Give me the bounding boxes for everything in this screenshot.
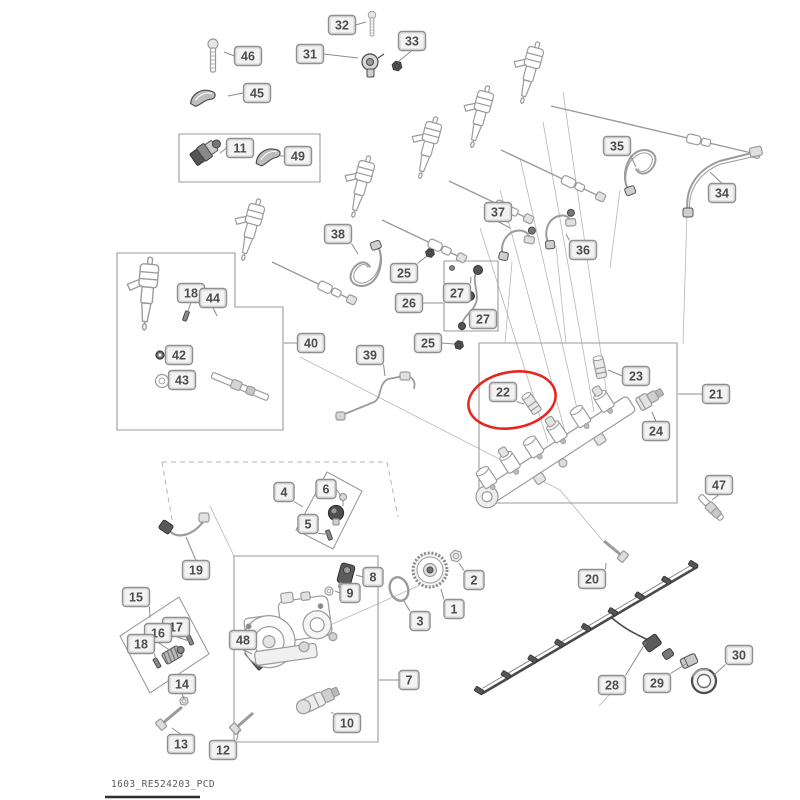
part-number: 24 <box>649 425 663 439</box>
part-label-48[interactable]: 48 <box>230 631 257 650</box>
part-number: 36 <box>576 244 590 258</box>
fuel-injector <box>454 81 496 150</box>
bolt-32 <box>368 11 376 36</box>
part-number: 20 <box>585 573 599 587</box>
part-number: 12 <box>216 744 230 758</box>
part-number: 29 <box>650 677 664 691</box>
part-label-13[interactable]: 13 <box>168 735 195 754</box>
nut-2 <box>450 550 462 562</box>
part-label-27[interactable]: 27 <box>444 284 471 303</box>
part-label-49[interactable]: 49 <box>285 147 312 166</box>
part-label-2[interactable]: 2 <box>464 571 484 590</box>
part-label-43[interactable]: 43 <box>169 371 196 390</box>
fuel-injector <box>335 151 377 220</box>
part-number: 35 <box>610 140 624 154</box>
exploded-parts-diagram: 4645323133114935343736382527262725394018… <box>0 0 800 800</box>
part-number: 25 <box>397 267 411 281</box>
parts-artwork <box>123 11 762 734</box>
part-number: 8 <box>370 571 377 585</box>
part-label-12[interactable]: 12 <box>210 741 237 760</box>
injection-line <box>551 106 761 159</box>
part-label-45[interactable]: 45 <box>244 84 271 103</box>
part-label-40[interactable]: 40 <box>298 334 325 353</box>
drive-gear-1 <box>413 553 447 587</box>
part-number: 49 <box>291 150 305 164</box>
hose-34 <box>683 146 763 217</box>
hose-38 <box>342 240 393 290</box>
part-label-1[interactable]: 1 <box>444 600 464 619</box>
part-label-7[interactable]: 7 <box>399 671 419 690</box>
part-number: 11 <box>233 142 246 156</box>
part-number: 13 <box>174 738 188 752</box>
part-label-32[interactable]: 32 <box>329 16 356 35</box>
part-number: 32 <box>335 19 349 33</box>
clamp-49 <box>253 146 282 167</box>
part-number: 42 <box>172 349 186 363</box>
part-number: 28 <box>605 679 619 693</box>
part-label-36[interactable]: 36 <box>570 241 597 260</box>
bolt-20 <box>604 541 629 563</box>
part-number: 3 <box>417 615 424 629</box>
part-label-8[interactable]: 8 <box>363 568 383 587</box>
part-label-30[interactable]: 30 <box>726 646 753 665</box>
part-label-6[interactable]: 6 <box>316 480 336 499</box>
part-label-26[interactable]: 26 <box>396 294 423 313</box>
part-number: 10 <box>340 717 354 731</box>
part-label-28[interactable]: 28 <box>599 676 626 695</box>
pin-47 <box>697 493 726 522</box>
part-number: 34 <box>715 187 729 201</box>
part-number: 22 <box>496 386 510 400</box>
part-number: 15 <box>129 591 143 605</box>
washer-43 <box>156 375 169 388</box>
part-label-42[interactable]: 42 <box>166 346 193 365</box>
injection-pump-7 <box>237 587 340 671</box>
part-label-15[interactable]: 15 <box>123 588 150 607</box>
sensor-31 <box>362 54 384 77</box>
part-label-4[interactable]: 4 <box>274 483 294 502</box>
part-number: 21 <box>709 388 723 402</box>
part-number: 4 <box>281 486 288 500</box>
part-number: 31 <box>303 48 317 62</box>
part-label-14[interactable]: 14 <box>169 675 196 694</box>
part-label-18[interactable]: 18 <box>128 635 155 654</box>
fuel-injector <box>504 37 546 106</box>
part-number: 40 <box>304 337 318 351</box>
sensor-24 <box>635 385 665 411</box>
element-16 <box>161 643 186 665</box>
document-code: 1603_RE524203_PCD <box>111 779 215 790</box>
part-label-11[interactable]: 11 <box>227 139 254 158</box>
part-label-23[interactable]: 23 <box>623 367 650 386</box>
part-label-33[interactable]: 33 <box>399 32 426 51</box>
shaft-40 <box>210 371 269 402</box>
fuel-injector <box>402 112 444 181</box>
part-number: 26 <box>402 297 416 311</box>
fitting-23 <box>593 355 607 379</box>
bolt-13 <box>155 707 182 731</box>
part-number: 7 <box>406 674 413 688</box>
part-label-29[interactable]: 29 <box>644 674 671 693</box>
washer-42 <box>156 351 164 359</box>
part-label-25[interactable]: 25 <box>415 334 442 353</box>
part-number: 18 <box>184 287 198 301</box>
nut-25 <box>455 341 464 350</box>
fuel-pipe-39 <box>336 372 415 420</box>
solenoid-10 <box>294 684 341 716</box>
part-label-34[interactable]: 34 <box>709 184 736 203</box>
part-number: 1 <box>451 603 458 617</box>
part-number: 9 <box>347 587 354 601</box>
clamp-45 <box>188 88 217 108</box>
hose-37 <box>498 222 536 264</box>
part-label-5[interactable]: 5 <box>298 515 318 534</box>
part-number: 44 <box>206 292 220 306</box>
part-number: 19 <box>189 564 203 578</box>
part-number: 30 <box>732 649 746 663</box>
part-label-35[interactable]: 35 <box>604 137 631 156</box>
part-label-3[interactable]: 3 <box>410 612 430 631</box>
injection-line <box>272 262 357 305</box>
part-label-44[interactable]: 44 <box>200 289 227 308</box>
pin-18 <box>182 311 189 322</box>
part-label-39[interactable]: 39 <box>357 346 384 365</box>
bolt-12 <box>229 713 253 735</box>
part-number: 43 <box>175 374 189 388</box>
part-label-31[interactable]: 31 <box>297 45 324 64</box>
part-label-27[interactable]: 27 <box>470 310 497 329</box>
sensor-11 <box>189 135 224 166</box>
bolt-46 <box>208 39 218 72</box>
part-number: 47 <box>712 479 726 493</box>
part-number: 27 <box>450 287 464 301</box>
cap-30 <box>692 669 716 693</box>
part-number: 45 <box>250 87 264 101</box>
part-number: 48 <box>236 634 250 648</box>
part-label-19[interactable]: 19 <box>183 561 210 580</box>
o-ring-3 <box>387 575 412 603</box>
part-number: 14 <box>175 678 189 692</box>
part-number: 18 <box>134 638 148 652</box>
injection-line <box>382 220 467 263</box>
part-label-20[interactable]: 20 <box>579 570 606 589</box>
valve-4 <box>329 506 344 526</box>
parts-diagram-page: 4645323133114935343736382527262725394018… <box>0 0 800 800</box>
part-label-46[interactable]: 46 <box>235 47 262 66</box>
part-label-38[interactable]: 38 <box>325 225 352 244</box>
fuel-injector-40 <box>123 256 159 332</box>
part-label-10[interactable]: 10 <box>334 714 361 733</box>
fitting-22 <box>521 391 542 415</box>
part-number: 23 <box>629 370 643 384</box>
part-label-25[interactable]: 25 <box>391 264 418 283</box>
pin-5 <box>325 530 332 541</box>
nut-33 <box>392 61 402 71</box>
part-number: 33 <box>405 35 419 49</box>
part-number: 27 <box>476 313 490 327</box>
washer-9 <box>325 587 333 595</box>
part-number: 46 <box>241 50 255 64</box>
part-label-24[interactable]: 24 <box>643 422 670 441</box>
hose-19 <box>158 513 209 535</box>
part-number: 39 <box>363 349 377 363</box>
part-number: 6 <box>323 483 330 497</box>
part-label-21[interactable]: 21 <box>703 385 730 404</box>
pin-18b <box>153 658 161 669</box>
injection-line <box>501 150 606 202</box>
part-label-9[interactable]: 9 <box>340 584 360 603</box>
part-number: 5 <box>305 518 312 532</box>
part-number: 25 <box>421 337 435 351</box>
part-label-37[interactable]: 37 <box>485 203 512 222</box>
fuel-rail-21 <box>460 375 641 517</box>
part-label-47[interactable]: 47 <box>706 476 733 495</box>
part-number: 37 <box>491 206 505 220</box>
part-number: 38 <box>331 228 345 242</box>
part-label-22[interactable]: 22 <box>490 383 517 402</box>
part-number: 2 <box>471 574 478 588</box>
